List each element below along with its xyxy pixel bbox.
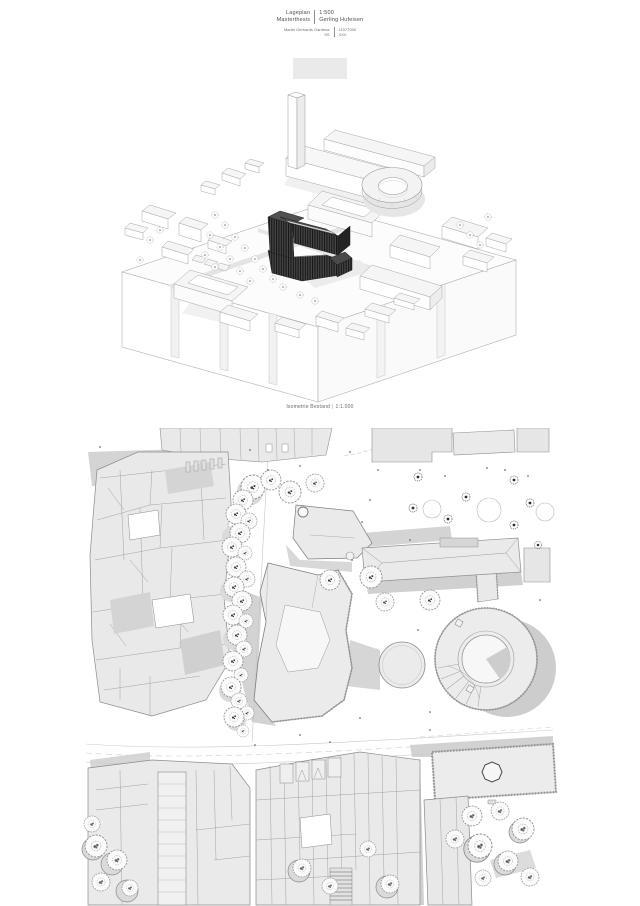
ring-building <box>362 168 425 218</box>
plan-block-southeast <box>424 796 539 905</box>
title-row: Masterthesis Gerling Hufeisen <box>277 17 364 24</box>
plan-block-south <box>256 752 420 905</box>
title-block-main: Lageplan 1:500 Masterthesis Gerling Hufe… <box>277 10 364 24</box>
caption-scale: 1:1.000 <box>336 404 354 410</box>
drawing-scale: 1:500 <box>315 10 364 17</box>
site-plan-figure <box>0 428 640 906</box>
tower <box>288 92 305 169</box>
figure-caption: Isometrie Bestand|1:1.000 <box>0 404 640 410</box>
title-block: Lageplan 1:500 Masterthesis Gerling Hufe… <box>0 10 640 37</box>
presentation-sheet: Lageplan 1:500 Masterthesis Gerling Hufe… <box>0 0 640 906</box>
project-type: Masterthesis <box>277 17 315 24</box>
project-name: Gerling Hufeisen <box>315 17 364 24</box>
title-block-meta: Martin Gerhards Gardena 11977000 SS XXV <box>284 27 356 37</box>
isometric-figure <box>0 65 640 410</box>
plan-garden <box>432 744 556 804</box>
semester-value: XXV <box>334 32 356 37</box>
plan-block-southwest <box>82 760 250 905</box>
title-row: SS XXV <box>284 32 356 37</box>
semester-label: SS <box>284 32 334 37</box>
plan-rotunda <box>435 568 537 710</box>
title-row: Lageplan 1:500 <box>277 10 364 17</box>
plan-round-plaza <box>379 642 425 688</box>
plan-central-site <box>254 505 372 722</box>
drawing-title: Lageplan <box>277 10 315 17</box>
caption-label: Isometrie Bestand <box>286 404 330 410</box>
